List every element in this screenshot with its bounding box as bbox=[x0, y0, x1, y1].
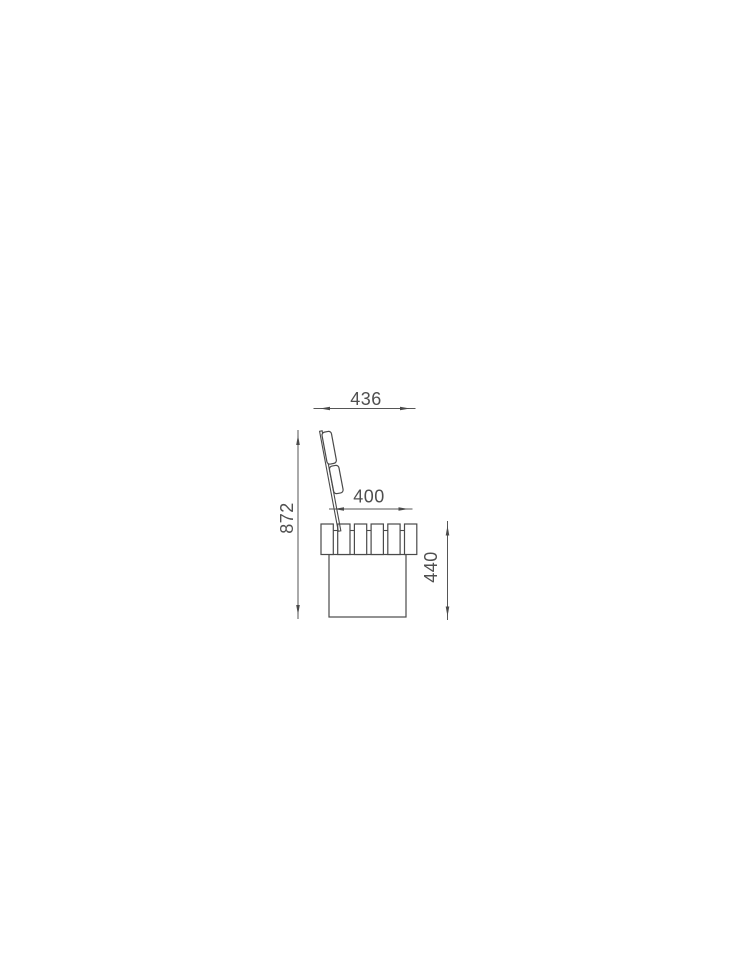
dim-label-seat-depth: 400 bbox=[353, 487, 385, 507]
arrowhead-down bbox=[446, 607, 450, 617]
overall-height-dimension: 872 bbox=[277, 430, 300, 619]
seat-slat bbox=[321, 524, 333, 555]
dim-label-overall-height: 872 bbox=[277, 502, 297, 534]
overall-depth-dimension: 436 bbox=[314, 389, 416, 410]
arrowhead-left bbox=[334, 507, 344, 511]
seat-slat bbox=[338, 524, 350, 555]
backrest bbox=[320, 431, 344, 531]
arrowhead-right bbox=[400, 407, 410, 411]
base-block bbox=[329, 555, 406, 618]
arrowhead-right bbox=[399, 507, 409, 511]
dim-label-seat-height: 440 bbox=[421, 551, 441, 583]
seat-slats bbox=[321, 524, 417, 555]
seat-slat bbox=[371, 524, 383, 555]
seat-height-dimension: 440 bbox=[421, 521, 449, 620]
seat-slat bbox=[354, 524, 366, 555]
seat-slat bbox=[405, 524, 417, 555]
seat-slat bbox=[388, 524, 400, 555]
backrest-slat-lower bbox=[329, 465, 344, 494]
bench-side-elevation-drawing: 436 400 872 440 bbox=[0, 0, 750, 962]
arrowhead-up bbox=[446, 526, 450, 536]
dim-label-overall-depth: 436 bbox=[350, 389, 382, 409]
arrowhead-left bbox=[320, 407, 330, 411]
arrowhead-down bbox=[296, 605, 300, 615]
arrowhead-up bbox=[296, 435, 300, 445]
drawing-canvas: 436 400 872 440 bbox=[0, 0, 750, 962]
backrest-slat-upper bbox=[322, 431, 337, 465]
